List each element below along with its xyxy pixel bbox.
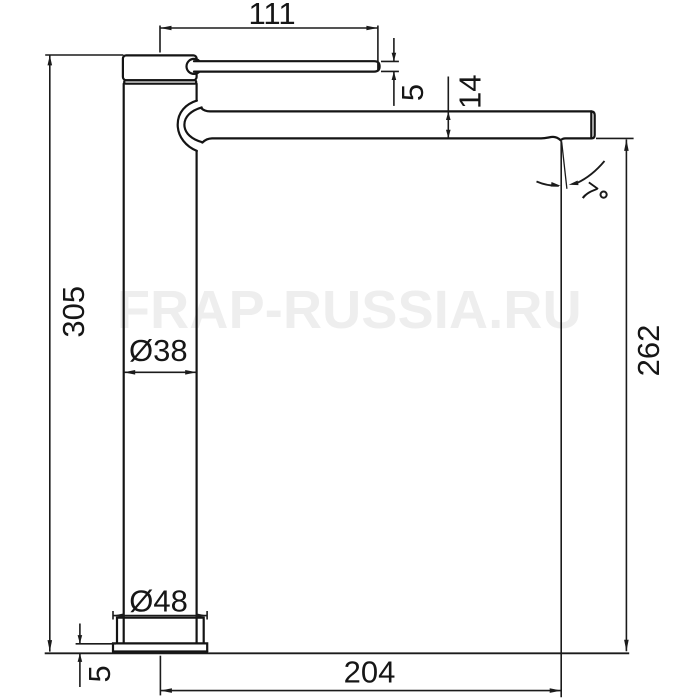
svg-text:204: 204 [344, 654, 396, 689]
svg-text:Ø48: Ø48 [129, 583, 188, 618]
svg-text:14: 14 [452, 74, 487, 108]
svg-text:Ø38: Ø38 [129, 333, 188, 368]
svg-text:5: 5 [395, 84, 430, 101]
svg-text:305: 305 [56, 286, 91, 338]
svg-text:FRAP-RUSSIA.RU: FRAP-RUSSIA.RU [117, 280, 582, 340]
svg-text:111: 111 [248, 0, 295, 31]
svg-text:5: 5 [82, 665, 117, 682]
svg-text:262: 262 [631, 325, 666, 377]
